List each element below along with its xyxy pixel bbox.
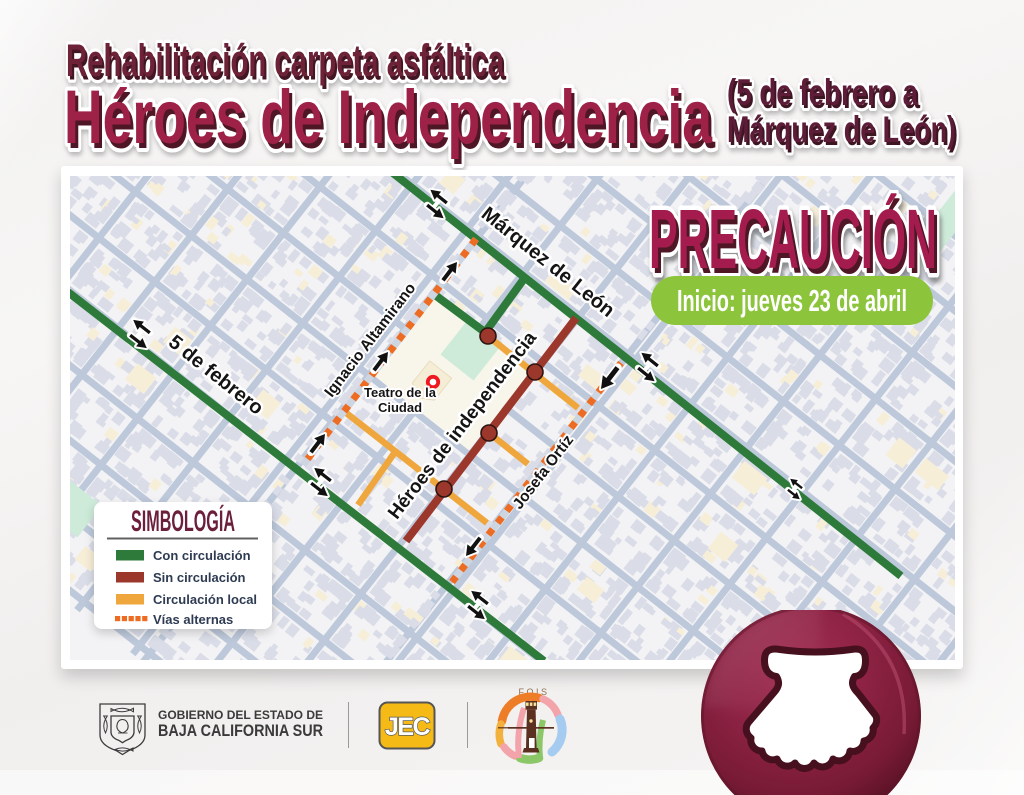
svg-text:Teatro de la: Teatro de la — [364, 385, 437, 400]
svg-text:Sin circulación: Sin circulación — [153, 570, 246, 585]
svg-text:GOBIERNO DEL ESTADO DE: GOBIERNO DEL ESTADO DE — [158, 708, 323, 722]
svg-text:SIMBOLOGÍA: SIMBOLOGÍA — [131, 504, 235, 538]
svg-text:Héroes de Independencia: Héroes de Independencia — [64, 75, 713, 160]
svg-text:(5 de febrero a: (5 de febrero a — [727, 72, 918, 113]
svg-text:Vías alternas: Vías alternas — [153, 612, 233, 627]
svg-text:JEC: JEC — [385, 713, 431, 741]
svg-text:Inicio: jueves 23 de abril: Inicio: jueves 23 de abril — [677, 283, 907, 318]
svg-text:Con circulación: Con circulación — [153, 548, 251, 563]
svg-text:Ciudad: Ciudad — [378, 400, 422, 415]
svg-text:Circulación local: Circulación local — [153, 592, 257, 607]
svg-text:BAJA CALIFORNIA SUR: BAJA CALIFORNIA SUR — [158, 722, 323, 740]
svg-text:PRECAUCIÓN: PRECAUCIÓN — [649, 192, 937, 286]
svg-text:Márquez de León): Márquez de León) — [727, 109, 956, 150]
